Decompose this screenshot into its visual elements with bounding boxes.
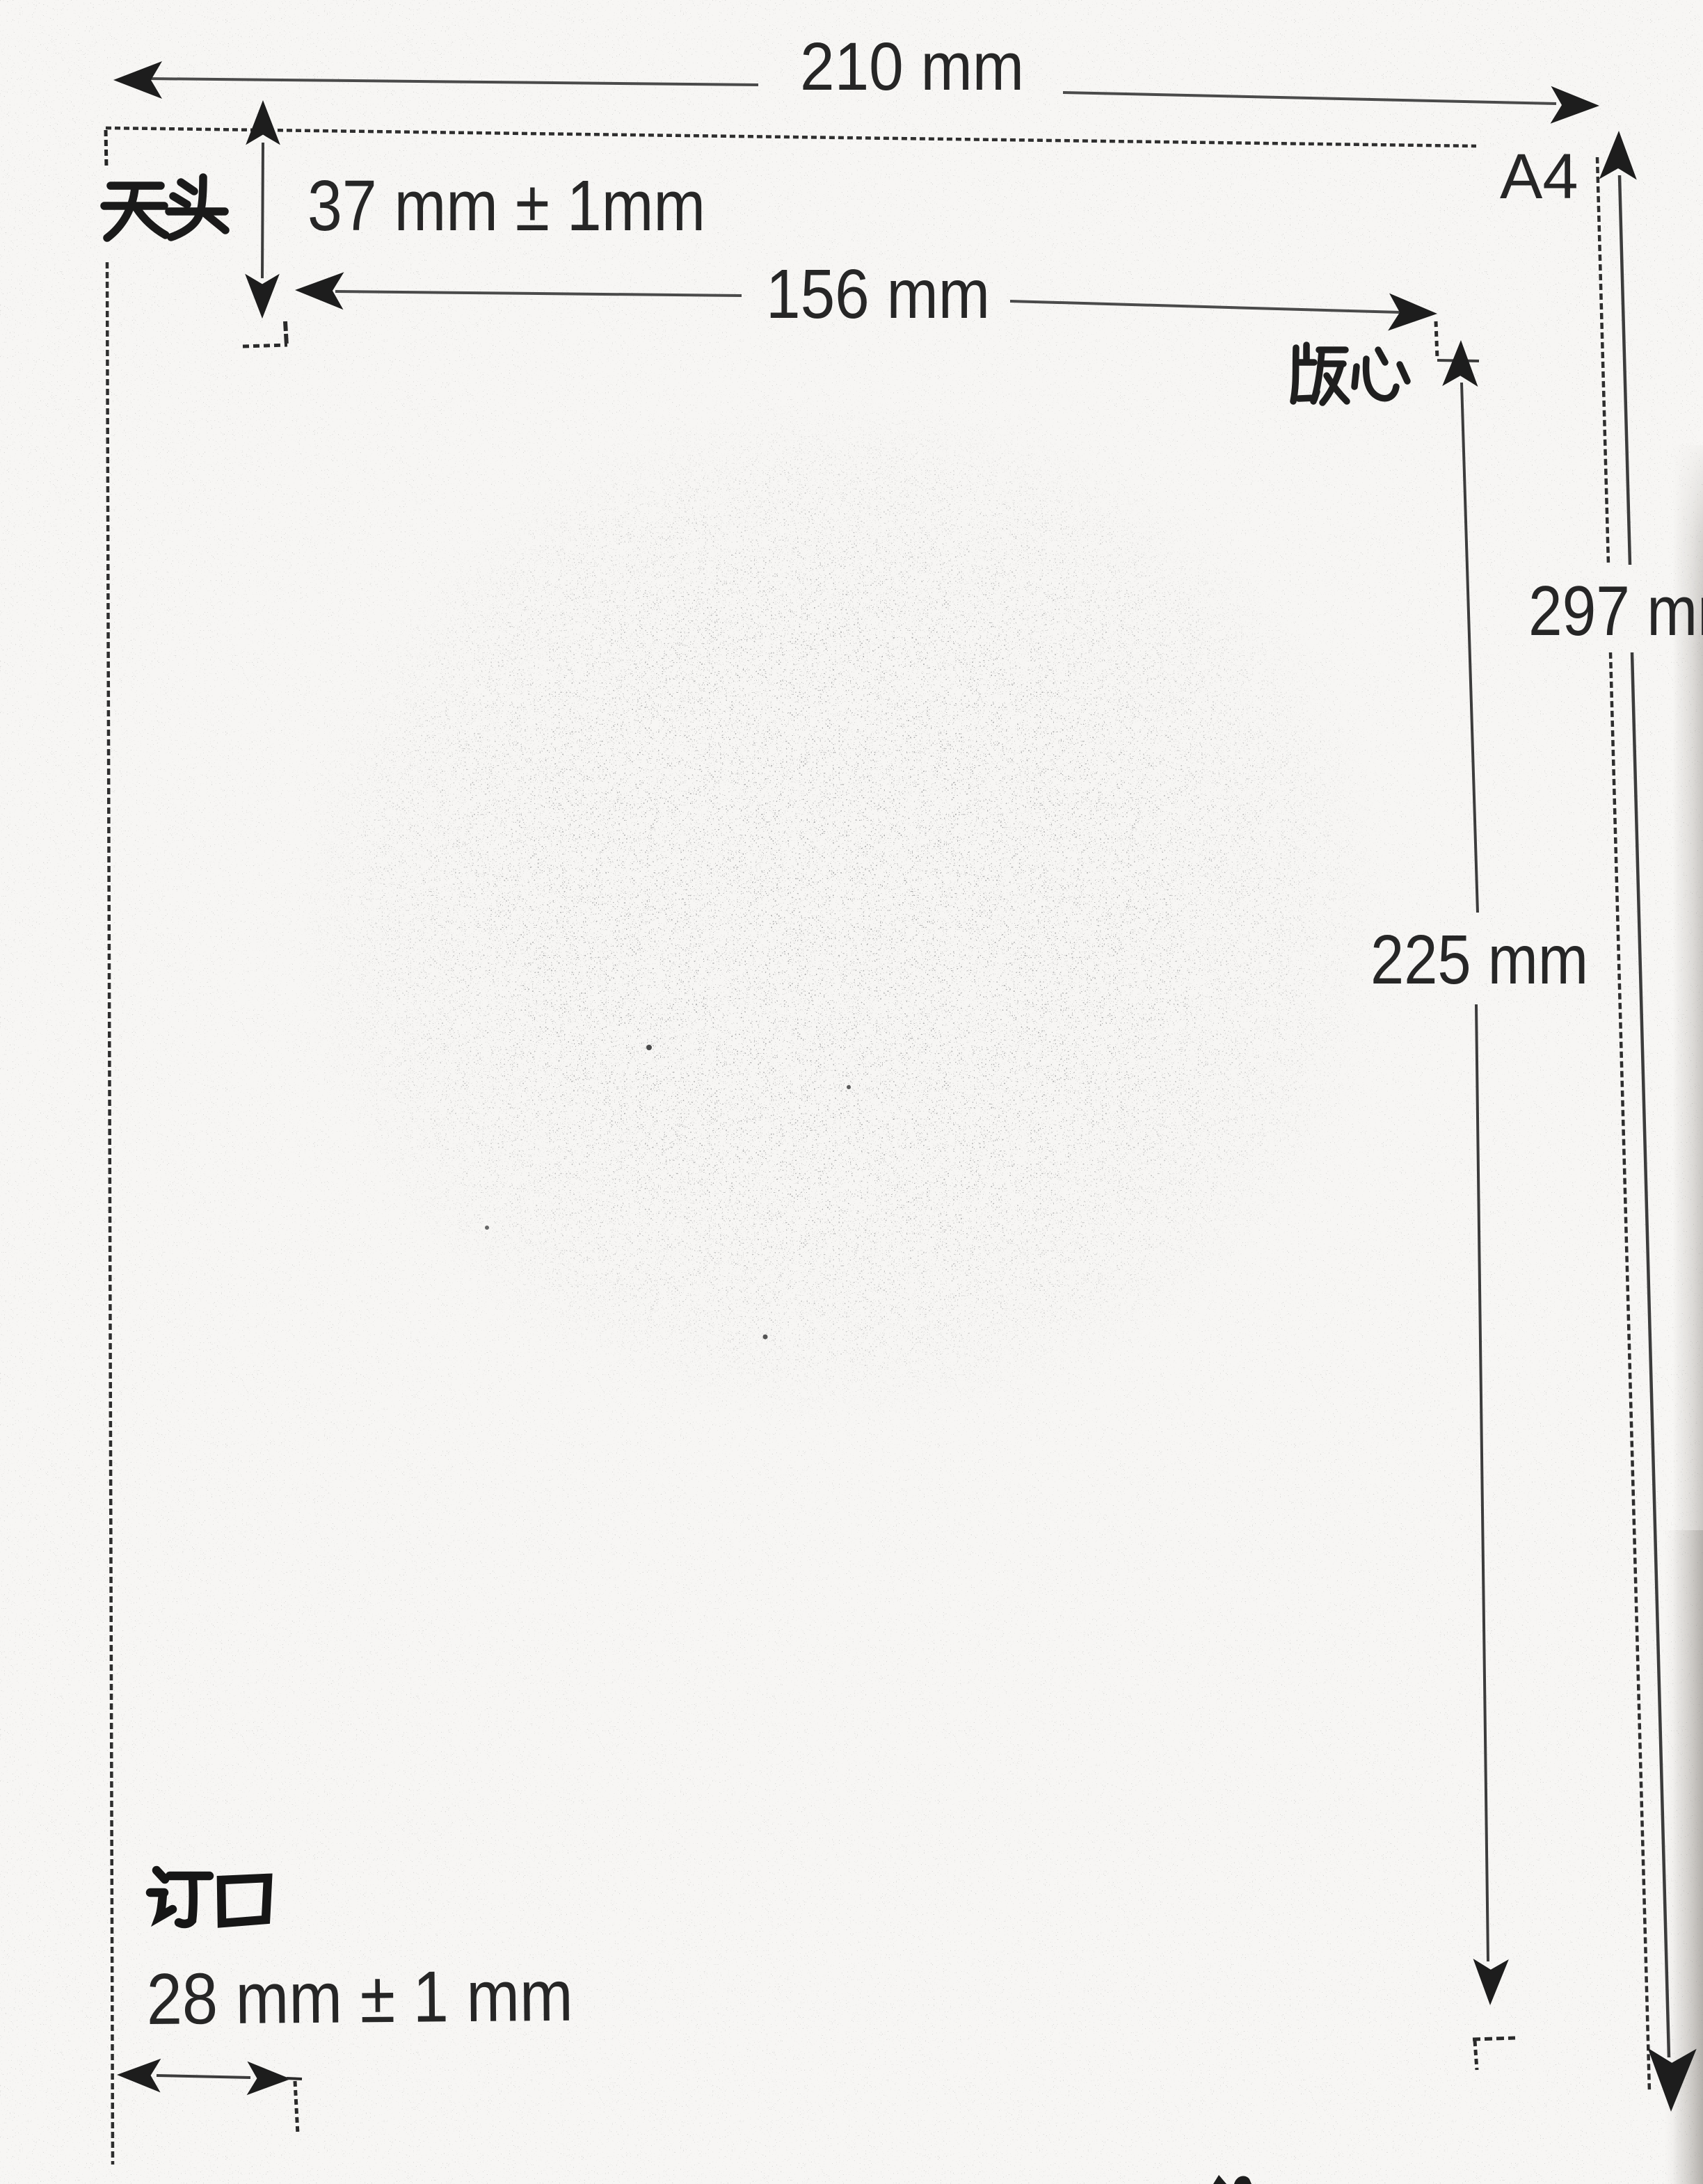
svg-text:225 mm: 225 mm bbox=[1370, 921, 1588, 999]
svg-text:210 mm: 210 mm bbox=[800, 29, 1024, 104]
svg-text:297 mm: 297 mm bbox=[1528, 572, 1703, 650]
svg-text:28 mm ± 1 mm: 28 mm ± 1 mm bbox=[146, 1956, 573, 2040]
svg-text:A4: A4 bbox=[1500, 141, 1578, 212]
svg-text:37 mm ± 1mm: 37 mm ± 1mm bbox=[307, 166, 705, 246]
svg-text:156 mm: 156 mm bbox=[766, 255, 990, 333]
